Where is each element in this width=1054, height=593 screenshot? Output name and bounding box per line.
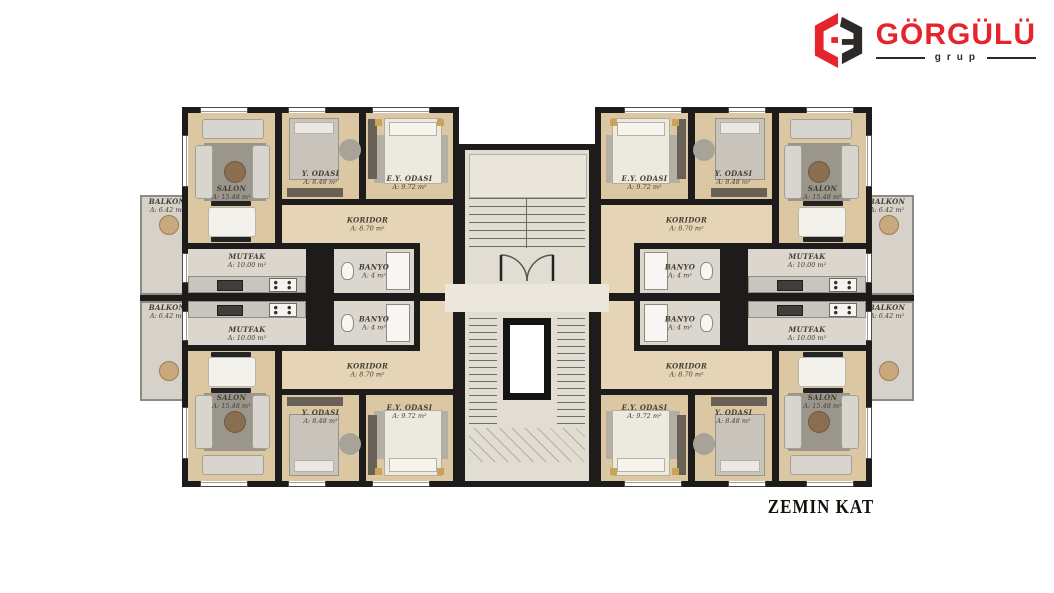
balcony-table-icon bbox=[879, 361, 899, 381]
sofa-icon bbox=[195, 145, 213, 199]
brand-subtitle: grup bbox=[931, 53, 981, 63]
balcony-table-icon bbox=[159, 215, 179, 235]
chairs-icon bbox=[211, 388, 251, 393]
brand-name: GÖRGÜLÜ bbox=[876, 20, 1036, 50]
apartment-bottom-left: SALONA: 15.48 m² Y. ODASIA: 8.48 m² E.Y.… bbox=[182, 297, 459, 487]
bed-icon bbox=[612, 118, 670, 184]
bed-icon bbox=[289, 118, 339, 180]
room-banyo: BANYOA: 4 m² bbox=[334, 301, 414, 345]
kitchen-counter-icon bbox=[188, 276, 306, 293]
apartment-bottom-right: SALONA: 15.48 m² Y. ODASIA: 8.48 m² E.Y.… bbox=[595, 297, 872, 487]
balcony-table-icon bbox=[159, 361, 179, 381]
sink-icon bbox=[777, 305, 803, 316]
stair-landing bbox=[469, 154, 587, 198]
brand-subtitle-row: grup bbox=[876, 53, 1036, 63]
nightstand-icon bbox=[672, 468, 679, 475]
sofa-icon bbox=[202, 455, 264, 475]
wardrobe-icon bbox=[711, 397, 767, 406]
sink-icon bbox=[217, 280, 243, 291]
stove-icon bbox=[269, 303, 297, 317]
chairs-icon bbox=[803, 237, 843, 242]
room-mutfak: MUTFAKA: 10.00 m² bbox=[188, 301, 306, 345]
room-y-odasi: Y. ODASIA: 8.48 m² bbox=[282, 113, 359, 199]
bed-icon bbox=[384, 410, 442, 476]
bed-icon bbox=[289, 414, 339, 476]
double-door-icon bbox=[499, 254, 555, 282]
stair-landing bbox=[469, 428, 585, 462]
room-banyo: BANYOA: 4 m² bbox=[640, 249, 720, 293]
pillow-icon bbox=[617, 122, 665, 136]
kitchen-counter-icon bbox=[188, 301, 306, 318]
wardrobe-icon bbox=[677, 119, 686, 179]
sofa-icon bbox=[195, 395, 213, 449]
nightstand-icon bbox=[437, 468, 444, 475]
chairs-icon bbox=[211, 352, 251, 357]
toilet-icon bbox=[341, 314, 354, 332]
shower-icon bbox=[386, 252, 410, 290]
stove-icon bbox=[829, 278, 857, 292]
shower-icon bbox=[644, 304, 668, 342]
wardrobe-icon bbox=[711, 188, 767, 197]
chairs-icon bbox=[803, 201, 843, 206]
apartment-top-right: SALONA: 15.48 m² Y. ODASIA: 8.48 m² E.Y.… bbox=[595, 107, 872, 297]
room-y-odasi: Y. ODASIA: 8.48 m² bbox=[282, 395, 359, 481]
kitchen-counter-icon bbox=[748, 301, 866, 318]
apartment-top-left: SALONA: 15.48 m² Y. ODASIA: 8.48 m² E.Y.… bbox=[182, 107, 459, 297]
coffee-table-icon bbox=[224, 161, 246, 183]
dining-table-icon bbox=[798, 357, 846, 387]
wardrobe-icon bbox=[287, 188, 343, 197]
toilet-icon bbox=[700, 314, 713, 332]
rug-icon bbox=[339, 139, 361, 161]
chairs-icon bbox=[211, 237, 251, 242]
chairs-icon bbox=[803, 352, 843, 357]
bed-icon bbox=[612, 410, 670, 476]
room-mutfak: MUTFAKA: 10.00 m² bbox=[748, 249, 866, 293]
rug-icon bbox=[693, 433, 715, 455]
wardrobe-icon bbox=[677, 415, 686, 475]
dining-table-icon bbox=[208, 207, 256, 237]
toilet-icon bbox=[341, 262, 354, 280]
sofa-icon bbox=[202, 119, 264, 139]
pillow-icon bbox=[389, 458, 437, 472]
room-mutfak: MUTFAKA: 10.00 m² bbox=[188, 249, 306, 293]
sofa-icon bbox=[784, 395, 802, 449]
coffee-table-icon bbox=[808, 161, 830, 183]
rug-icon bbox=[339, 433, 361, 455]
nightstand-icon bbox=[672, 119, 679, 126]
coffee-table-icon bbox=[224, 411, 246, 433]
sofa-icon bbox=[841, 395, 859, 449]
toilet-icon bbox=[700, 262, 713, 280]
left-wing: SALONA: 15.48 m² Y. ODASIA: 8.48 m² E.Y.… bbox=[182, 107, 459, 487]
divider bbox=[876, 57, 925, 59]
room-ey-odasi: E.Y. ODASIA: 9.72 m² bbox=[601, 395, 688, 481]
room-banyo: BANYOA: 4 m² bbox=[334, 249, 414, 293]
room-y-odasi: Y. ODASIA: 8.48 m² bbox=[695, 395, 772, 481]
staircase-icon bbox=[469, 198, 585, 248]
pillow-icon bbox=[720, 460, 760, 472]
right-wing: SALONA: 15.48 m² Y. ODASIA: 8.48 m² E.Y.… bbox=[595, 107, 872, 487]
elevator-icon bbox=[503, 318, 551, 400]
floor-title: ZEMIN KAT bbox=[746, 496, 896, 519]
pillow-icon bbox=[294, 122, 334, 134]
entry-hall bbox=[445, 284, 609, 312]
bed-icon bbox=[384, 118, 442, 184]
room-ey-odasi: E.Y. ODASIA: 9.72 m² bbox=[366, 113, 453, 199]
nightstand-icon bbox=[437, 119, 444, 126]
room-salon: SALONA: 15.48 m² bbox=[188, 351, 275, 481]
dining-table-icon bbox=[208, 357, 256, 387]
stove-icon bbox=[269, 278, 297, 292]
sink-icon bbox=[217, 305, 243, 316]
shower-icon bbox=[644, 252, 668, 290]
chairs-icon bbox=[803, 388, 843, 393]
sink-icon bbox=[777, 280, 803, 291]
room-salon: SALONA: 15.48 m² bbox=[779, 351, 866, 481]
sofa-icon bbox=[784, 145, 802, 199]
pillow-icon bbox=[720, 122, 760, 134]
sofa-icon bbox=[252, 145, 270, 199]
balcony-table-icon bbox=[879, 215, 899, 235]
rug-icon bbox=[693, 139, 715, 161]
gorgulu-logo-icon bbox=[812, 12, 866, 70]
staircase-icon bbox=[557, 318, 585, 424]
room-salon: SALONA: 15.48 m² bbox=[779, 113, 866, 243]
divider bbox=[987, 57, 1036, 59]
chairs-icon bbox=[211, 201, 251, 206]
wardrobe-icon bbox=[287, 397, 343, 406]
nightstand-icon bbox=[375, 119, 382, 126]
sofa-icon bbox=[790, 455, 852, 475]
room-banyo: BANYOA: 4 m² bbox=[640, 301, 720, 345]
floor-plan: BALKONA: 6.42 m² BALKONA: 6.42 m² BALKON… bbox=[137, 98, 917, 494]
nightstand-icon bbox=[610, 119, 617, 126]
room-salon: SALONA: 15.48 m² bbox=[188, 113, 275, 243]
gorgulu-logo: GÖRGÜLÜ grup bbox=[812, 12, 1036, 70]
stair-core bbox=[459, 144, 595, 487]
pillow-icon bbox=[294, 460, 334, 472]
coffee-table-icon bbox=[808, 411, 830, 433]
nightstand-icon bbox=[610, 468, 617, 475]
kitchen-counter-icon bbox=[748, 276, 866, 293]
wardrobe-icon bbox=[368, 119, 377, 179]
sofa-icon bbox=[252, 395, 270, 449]
room-ey-odasi: E.Y. ODASIA: 9.72 m² bbox=[366, 395, 453, 481]
room-ey-odasi: E.Y. ODASIA: 9.72 m² bbox=[601, 113, 688, 199]
bed-icon bbox=[715, 118, 765, 180]
wardrobe-icon bbox=[368, 415, 377, 475]
sofa-icon bbox=[841, 145, 859, 199]
dining-table-icon bbox=[798, 207, 846, 237]
stove-icon bbox=[829, 303, 857, 317]
pillow-icon bbox=[389, 122, 437, 136]
nightstand-icon bbox=[375, 468, 382, 475]
room-y-odasi: Y. ODASIA: 8.48 m² bbox=[695, 113, 772, 199]
staircase-icon bbox=[469, 318, 497, 424]
room-mutfak: MUTFAKA: 10.00 m² bbox=[748, 301, 866, 345]
pillow-icon bbox=[617, 458, 665, 472]
bed-icon bbox=[715, 414, 765, 476]
shower-icon bbox=[386, 304, 410, 342]
sofa-icon bbox=[790, 119, 852, 139]
